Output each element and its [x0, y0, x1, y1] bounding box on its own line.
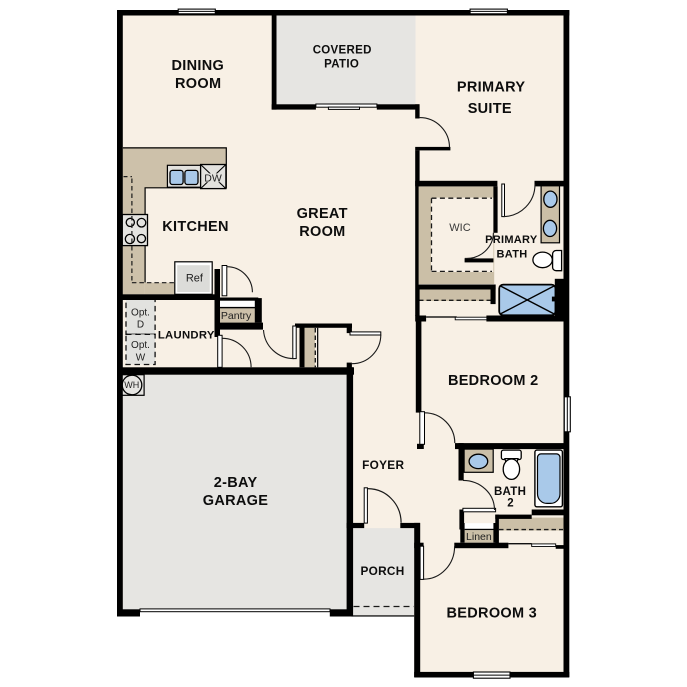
svg-text:FOYER: FOYER: [362, 458, 404, 472]
svg-text:Opt.: Opt.: [131, 340, 150, 351]
svg-text:WIC: WIC: [449, 222, 470, 234]
svg-text:COVERED: COVERED: [313, 45, 372, 57]
svg-text:PRIMARY: PRIMARY: [485, 234, 538, 246]
svg-text:BEDROOM 2: BEDROOM 2: [448, 373, 539, 389]
svg-text:D: D: [137, 320, 144, 331]
svg-text:PATIO: PATIO: [324, 59, 359, 71]
svg-text:LAUNDRY: LAUNDRY: [158, 329, 215, 341]
svg-text:PRIMARY: PRIMARY: [457, 80, 525, 96]
svg-text:DW: DW: [204, 172, 222, 184]
svg-text:Opt.: Opt.: [131, 308, 150, 319]
svg-text:ROOM: ROOM: [175, 76, 221, 92]
svg-text:BEDROOM 3: BEDROOM 3: [447, 606, 538, 622]
svg-text:SUITE: SUITE: [468, 101, 512, 117]
svg-text:ROOM: ROOM: [299, 224, 345, 240]
svg-text:KITCHEN: KITCHEN: [162, 219, 229, 235]
svg-text:Ref: Ref: [186, 273, 204, 285]
svg-text:W: W: [136, 353, 146, 364]
svg-text:PORCH: PORCH: [360, 564, 404, 578]
svg-text:2: 2: [507, 498, 514, 510]
svg-text:GREAT: GREAT: [297, 206, 348, 222]
svg-text:BATH: BATH: [497, 248, 528, 260]
svg-text:2-BAY: 2-BAY: [214, 475, 258, 491]
svg-text:DINING: DINING: [172, 58, 225, 74]
svg-text:Pantry: Pantry: [221, 310, 252, 322]
svg-text:GARAGE: GARAGE: [203, 493, 268, 509]
svg-text:BATH: BATH: [494, 486, 526, 498]
svg-text:Linen: Linen: [466, 531, 492, 543]
svg-text:WH: WH: [124, 380, 139, 390]
